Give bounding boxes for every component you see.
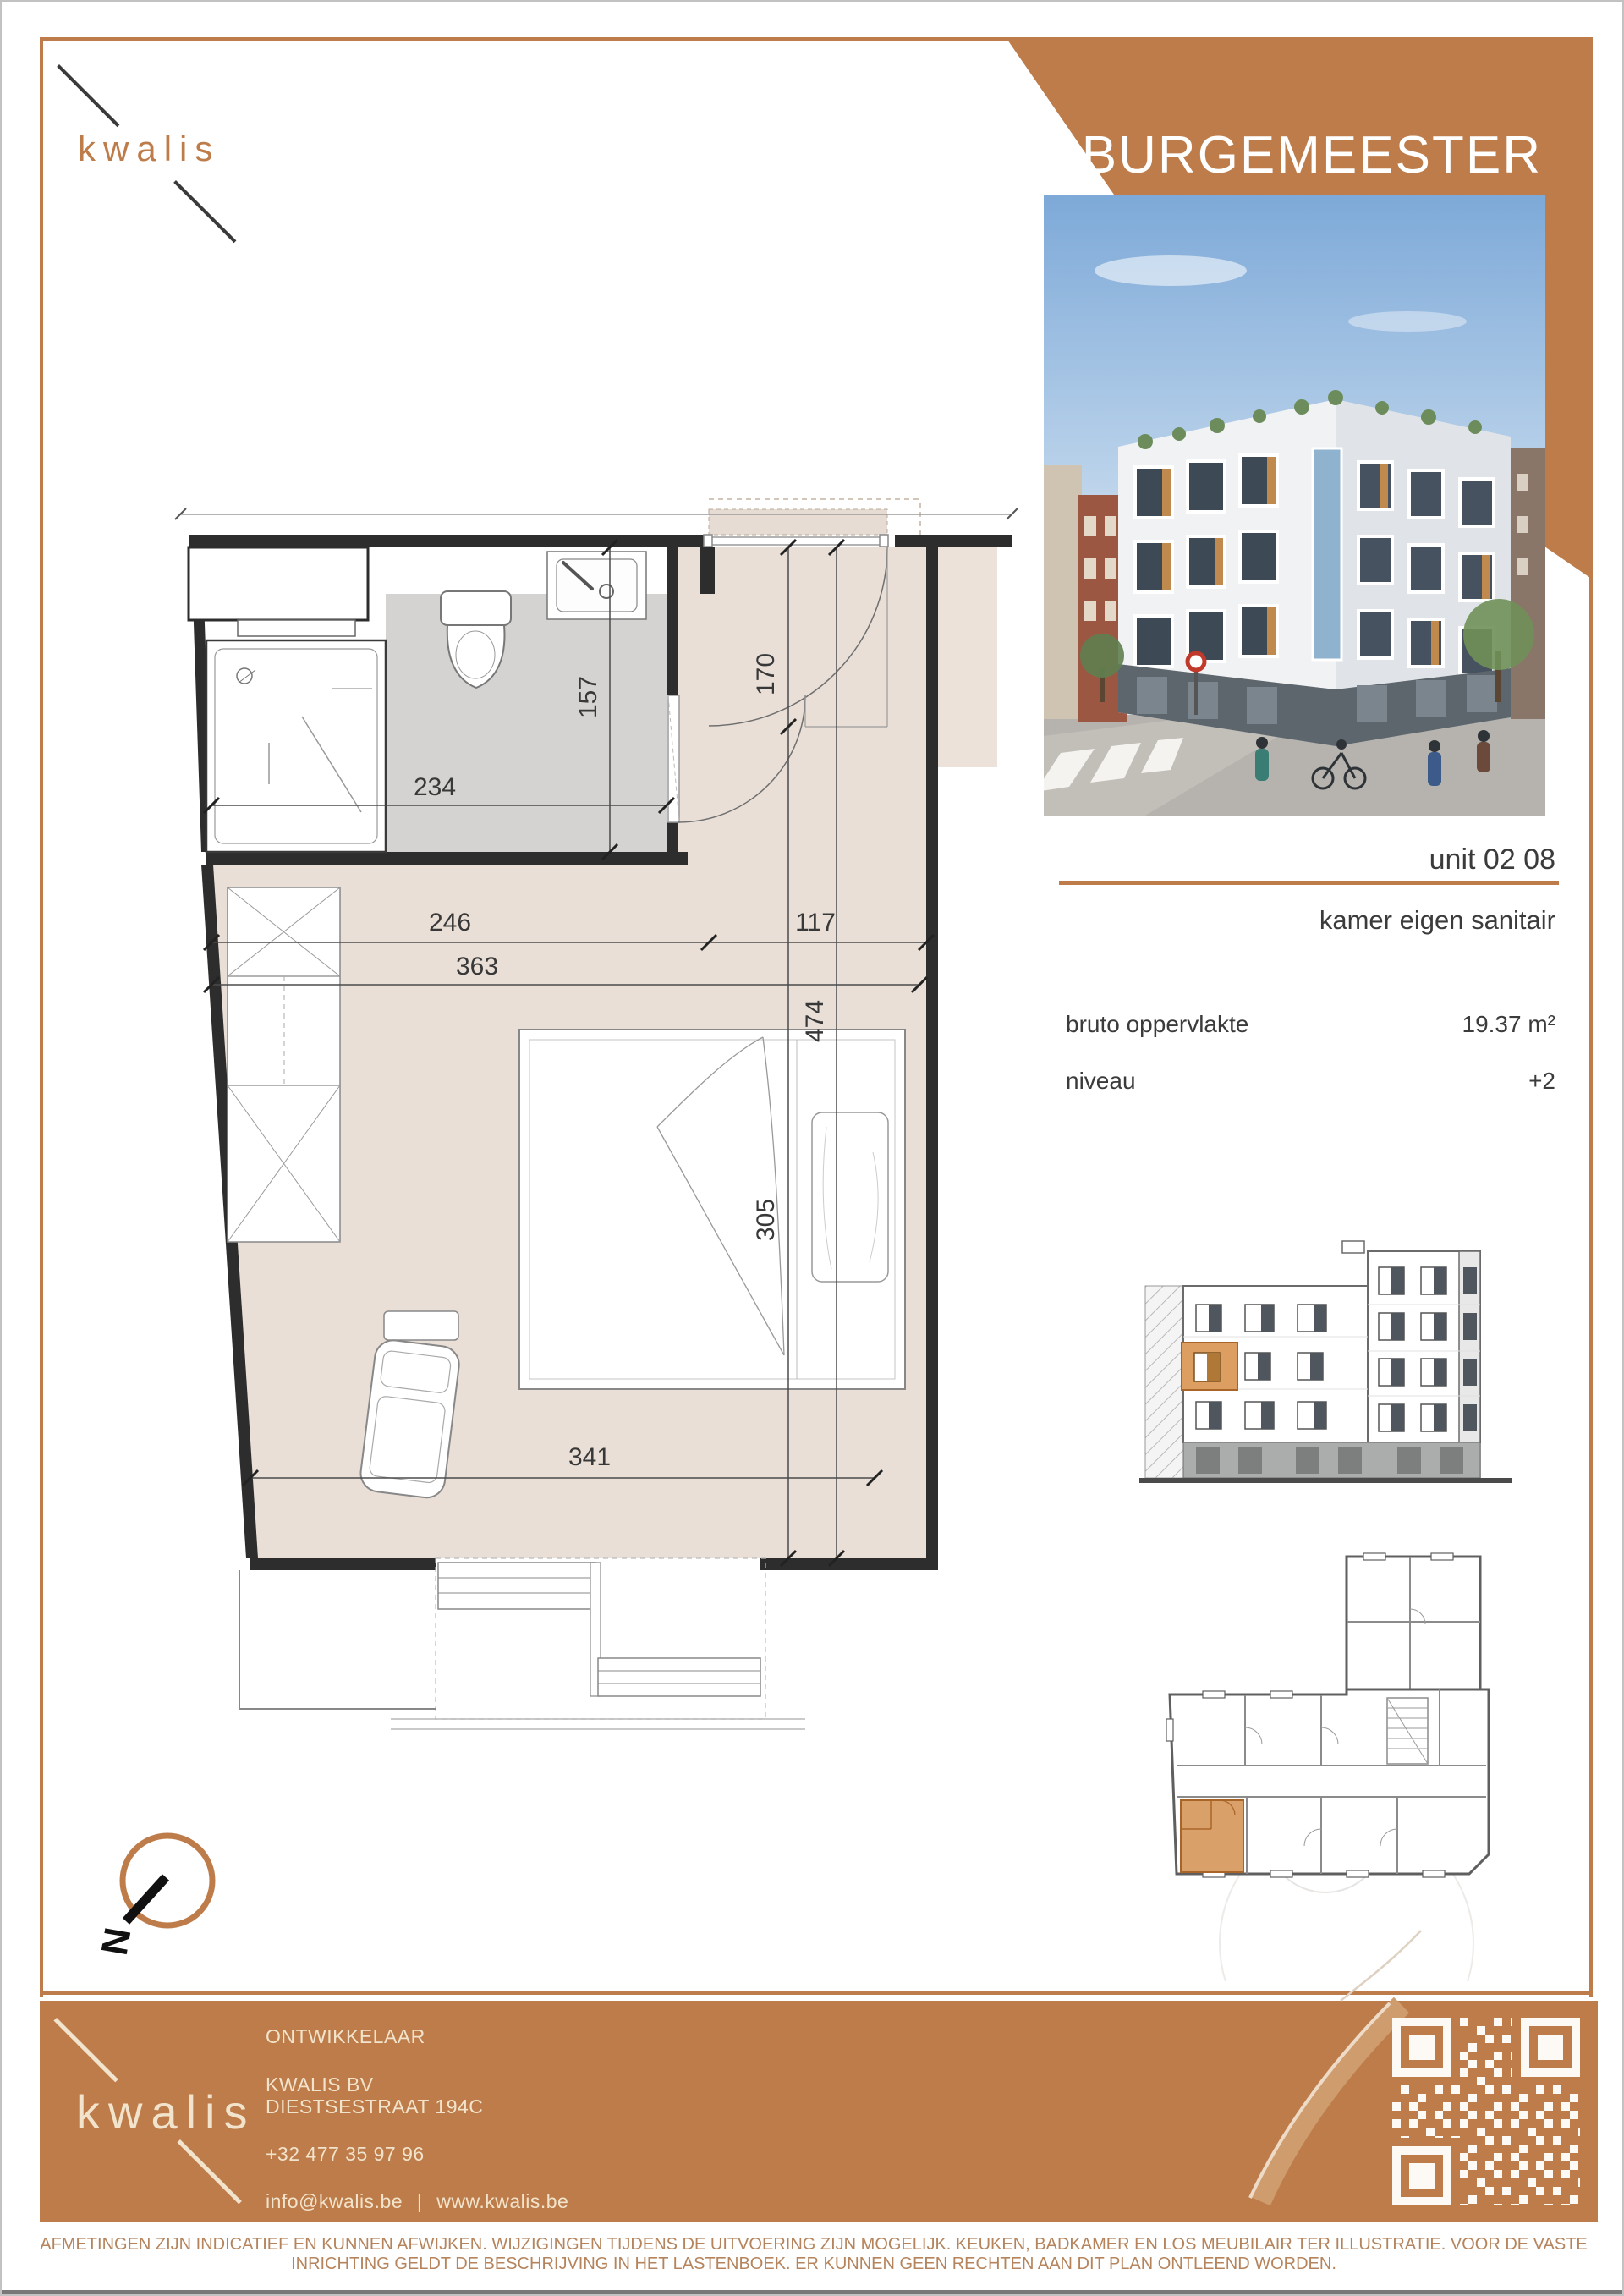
dim-mid-width: 363 [456, 953, 498, 980]
building-photo [1044, 195, 1545, 816]
brand-logo: kwalis [78, 129, 220, 169]
footer-brand-logo: kwalis [76, 2085, 255, 2139]
unit-divider [1059, 881, 1559, 885]
dim-left-width: 246 [429, 909, 471, 937]
page-bottom-edge [2, 2290, 1624, 2294]
disclaimer-line-2: INRICHTING GELDT DE BESCHRIJVING IN HET … [2, 2255, 1624, 2274]
floor-plan: 234 157 170 246 117 363 474 305 341 [120, 488, 1025, 1749]
dim-bath-depth: 157 [574, 676, 602, 718]
dim-bed-length: 305 [752, 1199, 780, 1241]
dim-room-depth: 474 [801, 1000, 829, 1042]
highlighted-unit-keyplan [1181, 1800, 1243, 1872]
frame-left [40, 37, 43, 1997]
developer-company: KWALIS BV [266, 2074, 374, 2096]
north-label: N [93, 1925, 139, 1958]
north-compass: N [86, 1821, 255, 1969]
developer-heading: ONTWIKKELAAR [266, 2025, 425, 2048]
project-title: BURGEMEESTER [1082, 125, 1542, 185]
area-label: bruto oppervlakte [1066, 1011, 1248, 1038]
developer-website: www.kwalis.be [436, 2190, 568, 2212]
developer-web: info@kwalis.be | www.kwalis.be [266, 2190, 568, 2213]
brochure-page: kwalis BURGEMEESTER Blijde Inkomststraat… [0, 0, 1624, 2296]
level-label: niveau [1066, 1068, 1136, 1095]
dim-bottom-width: 341 [568, 1443, 611, 1471]
level-value: +2 [1528, 1068, 1555, 1095]
qr-code [1392, 2018, 1580, 2205]
disclaimer-line-1: AFMETINGEN ZIJN INDICATIEF EN KUNNEN AFW… [2, 2235, 1624, 2255]
developer-street: DIESTSESTRAAT 194C [266, 2096, 483, 2118]
developer-email: info@kwalis.be [266, 2190, 403, 2212]
unit-number: unit 02 08 [1429, 843, 1555, 876]
dim-entry-width: 117 [795, 909, 836, 937]
separator: | [417, 2190, 422, 2212]
highlighted-unit-elevation [1182, 1343, 1237, 1390]
logo-diagonal-bottom [173, 180, 236, 243]
facade-windows-left [1135, 455, 1277, 667]
area-value: 19.37 m² [1462, 1011, 1556, 1038]
logo-diagonal-top [57, 64, 119, 127]
developer-phone: +32 477 35 97 96 [266, 2143, 425, 2166]
dim-bath-width: 234 [414, 773, 456, 801]
dim-entry-depth: 170 [752, 653, 780, 695]
north-arrow [126, 1877, 166, 1921]
building-elevation [1135, 1233, 1516, 1491]
unit-type: kamer eigen sanitair [1319, 905, 1555, 936]
